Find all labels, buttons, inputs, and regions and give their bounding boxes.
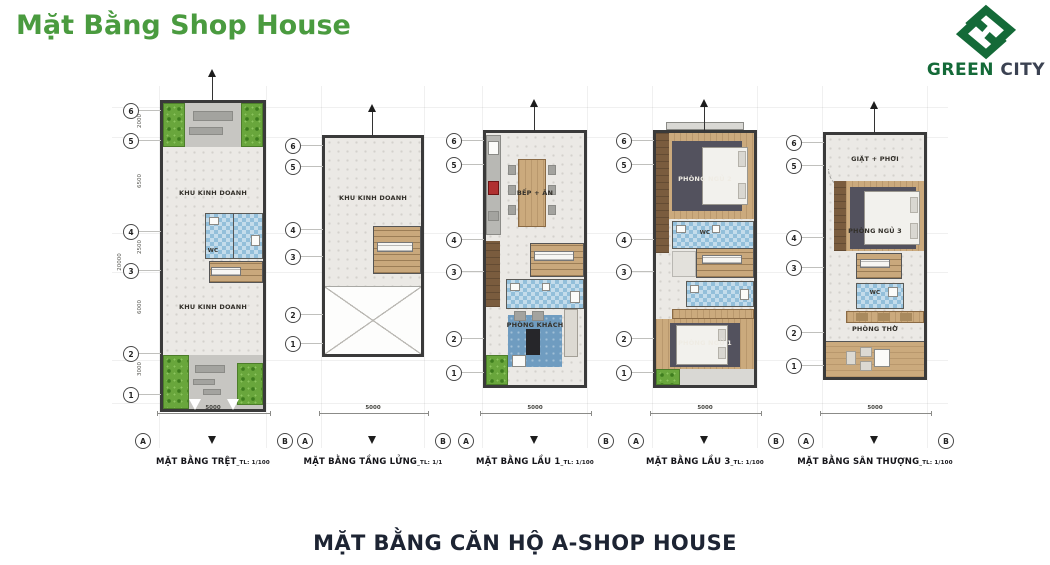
page-canvas: Mặt Bằng Shop House GREEN CITY KHU KINH … — [0, 0, 1050, 565]
armchair — [514, 311, 526, 321]
plan-scale: _TL: 1/100 — [561, 460, 594, 466]
planter — [486, 355, 508, 385]
grid-tick-line — [632, 239, 654, 240]
width-dimension-line — [650, 413, 762, 414]
grid-row-marker: 1 — [123, 387, 139, 403]
construction-line-v — [757, 86, 758, 448]
altar-box — [856, 313, 868, 321]
grid-row-marker: 3 — [616, 264, 632, 280]
grid-row-marker: 2 — [446, 331, 462, 347]
section-pointer-icon — [208, 436, 216, 444]
driveway-step — [195, 365, 225, 373]
grid-tick-line — [632, 271, 654, 272]
dining-chair — [508, 205, 516, 215]
floor-plan-level3: PHÒNG NGỦ 2 WC PHÒNG NGỦ 1 654321AB5000 — [653, 130, 757, 388]
entry-step — [189, 127, 223, 135]
grid-tick-line — [462, 140, 484, 141]
grid-row-marker: 6 — [786, 135, 802, 151]
north-arrow-line — [534, 105, 535, 131]
grid-row-marker: 2 — [786, 325, 802, 341]
plan-scale: _TL: 1/100 — [731, 460, 764, 466]
dining-chair — [548, 205, 556, 215]
grid-tick-line — [632, 140, 654, 141]
deck-chair — [846, 351, 856, 365]
grid-row-marker: 6 — [446, 133, 462, 149]
grid-row-marker: 6 — [616, 133, 632, 149]
grid-tick-line — [139, 110, 161, 111]
segment-dimension: 2500 — [137, 240, 143, 254]
void-open-below — [325, 286, 421, 354]
north-arrow-line — [372, 110, 373, 136]
grid-row-marker: 4 — [285, 222, 301, 238]
grid-tick-line — [632, 372, 654, 373]
room-label-living: PHÒNG KHÁCH — [486, 321, 584, 329]
grid-row-marker: 6 — [123, 103, 139, 119]
grid-col-marker: B — [435, 433, 451, 449]
planter — [656, 369, 680, 385]
room-label-business-lower: KHU KINH DOANH — [163, 303, 263, 311]
floor-plan-ground: KHU KINH DOANH WC KHU KINH DOANH 654321A… — [160, 100, 266, 412]
planter — [163, 103, 185, 147]
grid-tick-line — [462, 239, 484, 240]
grid-tick-line — [301, 229, 323, 230]
green-city-logo-icon — [953, 4, 1019, 60]
grid-tick-line — [802, 142, 824, 143]
plan-name: MẶT BẰNG SÂN THƯỢNG — [797, 457, 919, 467]
fridge — [488, 141, 499, 155]
grid-col-marker: B — [598, 433, 614, 449]
grid-col-marker: B — [277, 433, 293, 449]
room-label-wc: WC — [656, 230, 754, 236]
grid-col-marker: A — [135, 433, 151, 449]
sink-fixture — [209, 217, 219, 225]
brand-logo-text: GREEN CITY — [926, 60, 1046, 80]
north-arrow-line — [212, 75, 213, 101]
construction-line-v — [424, 86, 425, 448]
grid-col-marker: A — [628, 433, 644, 449]
segment-dimension: 6500 — [137, 174, 143, 188]
dining-chair — [548, 165, 556, 175]
grid-row-marker: 4 — [123, 224, 139, 240]
north-arrow-head — [870, 101, 878, 109]
grid-col-marker: B — [938, 433, 954, 449]
grid-row-marker: 1 — [616, 365, 632, 381]
plan-caption-level1: MẶT BẰNG LẦU 1_TL: 1/100 — [437, 457, 633, 467]
grid-row-marker: 2 — [616, 331, 632, 347]
grid-row-marker: 3 — [786, 260, 802, 276]
floor-plan-roof-terrace: GIẶT + PHƠI PHÒNG NGỦ 3 WC PHÒNG THỜ 654… — [823, 132, 927, 380]
grid-tick-line — [802, 267, 824, 268]
unit-plan-title: MẶT BẰNG CĂN HỘ A-SHOP HOUSE — [0, 531, 1050, 555]
grid-tick-line — [301, 256, 323, 257]
altar-box — [900, 313, 912, 321]
armchair — [532, 311, 544, 321]
staircase-steps — [702, 255, 742, 264]
deck-table — [874, 349, 890, 367]
staircase-steps — [534, 251, 574, 261]
room-label-wc: WC — [163, 248, 263, 254]
segment-dimension: 6000 — [137, 300, 143, 314]
section-pointer-icon — [870, 436, 878, 444]
width-dimension-line — [820, 413, 932, 414]
construction-line-v — [587, 86, 588, 448]
room-label-bedroom3: PHÒNG NGỦ 3 — [826, 227, 924, 235]
width-dimension-line — [480, 413, 592, 414]
grid-tick-line — [139, 231, 161, 232]
construction-line-v — [927, 86, 928, 448]
grid-row-marker: 4 — [446, 232, 462, 248]
north-arrow-head — [530, 99, 538, 107]
plan-scale: _TL: 1/100 — [237, 460, 270, 466]
grid-row-marker: 1 — [786, 358, 802, 374]
altar-box — [878, 313, 890, 321]
north-arrow-line — [874, 107, 875, 133]
grid-tick-line — [632, 164, 654, 165]
grid-row-marker: 3 — [285, 249, 301, 265]
cabinet-row — [672, 309, 754, 319]
grid-tick-line — [462, 372, 484, 373]
staircase-steps — [377, 242, 413, 252]
staircase-steps — [211, 267, 241, 276]
entry-step — [193, 111, 233, 121]
north-arrow-head — [700, 99, 708, 107]
segment-dimension: 3000 — [137, 362, 143, 376]
room-label-wc: WC — [826, 290, 924, 296]
grid-row-marker: 1 — [446, 365, 462, 381]
plan-caption-level3: MẶT BẰNG LẦU 3_TL: 1/100 — [607, 457, 803, 467]
grid-row-marker: 5 — [285, 159, 301, 175]
kitchen-sink — [488, 211, 499, 221]
grid-row-marker: 6 — [285, 138, 301, 154]
width-dimension-line — [157, 413, 271, 414]
room-label-altar: PHÒNG THỜ — [826, 325, 924, 333]
brand-logo: GREEN CITY — [926, 4, 1046, 80]
width-dimension-label: 5000 — [656, 405, 754, 411]
section-pointer-icon — [530, 436, 538, 444]
pillow — [718, 347, 726, 359]
north-arrow-line — [704, 105, 705, 131]
staircase-steps — [860, 259, 890, 268]
coffee-table — [512, 355, 526, 367]
floor-plan-level1: BẾP + ĂN PHÒNG KHÁCH 654321AB5000 — [483, 130, 587, 388]
balcony-railing — [666, 122, 744, 130]
plan-name: MẶT BẰNG LẦU 1 — [476, 457, 560, 467]
construction-line-v — [266, 86, 267, 448]
grid-tick-line — [802, 332, 824, 333]
sink-fixture — [510, 283, 520, 291]
driveway-step — [193, 379, 215, 385]
grid-row-marker: 2 — [123, 346, 139, 362]
grid-row-marker: 4 — [786, 230, 802, 246]
grid-tick-line — [301, 343, 323, 344]
grid-row-marker: 5 — [786, 158, 802, 174]
grid-tick-line — [632, 338, 654, 339]
toilet-fixture — [251, 235, 260, 246]
planter — [163, 355, 189, 409]
room-label-laundry: GIẶT + PHƠI — [826, 155, 924, 163]
grid-col-marker: B — [768, 433, 784, 449]
grid-row-marker: 5 — [123, 133, 139, 149]
width-dimension-label: 5000 — [486, 405, 584, 411]
section-pointer-icon — [368, 436, 376, 444]
grid-tick-line — [802, 165, 824, 166]
plan-caption-roof: MẶT BẰNG SÂN THƯỢNG_TL: 1/100 — [777, 457, 973, 467]
grid-row-marker: 5 — [446, 157, 462, 173]
section-pointer-icon — [700, 436, 708, 444]
width-dimension-label: 5000 — [826, 405, 924, 411]
grid-row-marker: 3 — [446, 264, 462, 280]
room-label-bedroom1: PHÒNG NGỦ 1 — [656, 339, 754, 347]
room-label-kitchen-dining: BẾP + ĂN — [486, 189, 584, 197]
grid-tick-line — [462, 164, 484, 165]
brand-word-green: GREEN — [927, 60, 994, 80]
width-dimension-label: 5000 — [325, 405, 421, 411]
tv-cabinet — [526, 329, 540, 355]
grid-tick-line — [462, 271, 484, 272]
grid-col-marker: A — [297, 433, 313, 449]
grid-row-marker: 4 — [616, 232, 632, 248]
stair-landing — [672, 251, 696, 277]
pillow — [738, 183, 746, 199]
grid-tick-line — [139, 270, 161, 271]
wardrobe — [834, 181, 846, 251]
toilet-fixture — [542, 283, 550, 291]
grid-tick-line — [802, 365, 824, 366]
grid-tick-line — [301, 145, 323, 146]
grid-tick-line — [301, 166, 323, 167]
plan-name: MẶT BẰNG TRỆT — [156, 457, 236, 467]
plan-name: MẶT BẰNG TẦNG LỬNG — [304, 457, 418, 467]
room-label-bedroom2: PHÒNG NGỦ 2 — [656, 175, 754, 183]
grid-tick-line — [301, 314, 323, 315]
driveway-step — [203, 389, 221, 395]
north-arrow-head — [368, 104, 376, 112]
toilet-fixture — [740, 289, 749, 300]
plan-scale: _TL: 1/100 — [919, 460, 952, 466]
deck-chair — [860, 361, 872, 371]
shower-fixture — [570, 291, 580, 303]
pillow — [738, 151, 746, 167]
grid-tick-line — [802, 237, 824, 238]
entry-door-notch — [189, 399, 201, 410]
width-dimension-label: 5000 — [163, 405, 263, 411]
room-label-business: KHU KINH DOANH — [325, 194, 421, 202]
dining-chair — [508, 165, 516, 175]
grid-tick-line — [139, 140, 161, 141]
segment-dimension: 2000 — [137, 114, 143, 128]
grid-row-marker: 1 — [285, 336, 301, 352]
grid-row-marker: 3 — [123, 263, 139, 279]
room-label-business-upper: KHU KINH DOANH — [163, 189, 263, 197]
grid-row-marker: 2 — [285, 307, 301, 323]
grid-row-marker: 5 — [616, 157, 632, 173]
planter — [241, 103, 263, 147]
grid-tick-line — [139, 394, 161, 395]
deck-chair — [860, 347, 872, 357]
brand-word-city: CITY — [1000, 60, 1045, 80]
floor-plan-mezzanine: KHU KINH DOANH 654321AB5000 — [322, 135, 424, 357]
plan-name: MẶT BẰNG LẦU 3 — [646, 457, 730, 467]
entry-door-notch — [227, 399, 239, 410]
grid-col-marker: A — [798, 433, 814, 449]
wardrobe — [486, 241, 500, 307]
pillow — [910, 197, 918, 213]
grid-col-marker: A — [458, 433, 474, 449]
grid-tick-line — [462, 338, 484, 339]
planter — [237, 363, 263, 405]
page-title: Mặt Bằng Shop House — [16, 10, 351, 41]
north-arrow-head — [208, 69, 216, 77]
sofa — [564, 309, 578, 357]
total-dimension: 20000 — [117, 253, 123, 271]
width-dimension-line — [319, 413, 429, 414]
grid-tick-line — [139, 353, 161, 354]
sink-fixture — [690, 285, 699, 293]
